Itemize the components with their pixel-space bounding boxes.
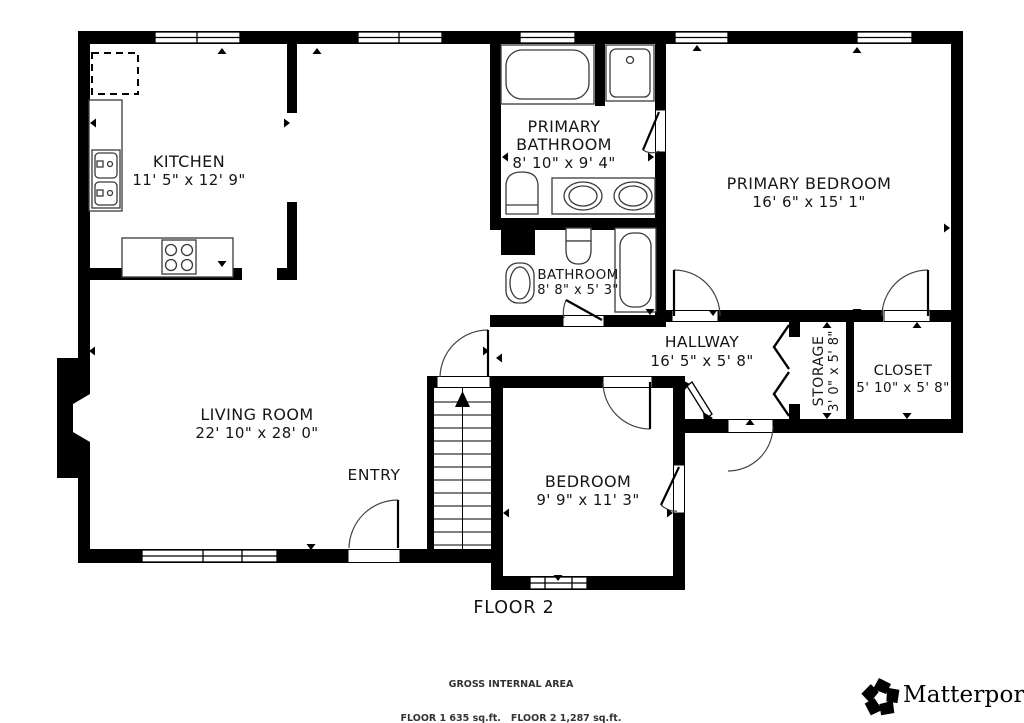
- toilet-icon: [566, 228, 591, 264]
- floor-areas: FLOOR 1 635 sq.ft. FLOOR 2 1,287 sq.ft.: [341, 713, 682, 723]
- window: [520, 32, 575, 43]
- room-name: PRIMARY BEDROOM: [727, 174, 892, 193]
- brand-wordmark: Matterport: [903, 682, 1024, 708]
- room-dims: 8' 8" x 5' 3": [537, 283, 619, 299]
- kitchen-sink-icon: [92, 150, 120, 208]
- room-label-storage: STORAGE 3' 0" x 5' 8": [811, 330, 843, 412]
- window: [675, 32, 728, 43]
- stove-icon: [162, 240, 196, 274]
- bathtub-icon: [615, 228, 656, 312]
- room-dims: 8' 10" x 9' 4": [512, 154, 615, 172]
- room-name: BATHROOM: [537, 267, 619, 283]
- sink-icon: [506, 263, 534, 303]
- room-label-kitchen: KITCHEN 11' 5" x 12' 9": [132, 152, 245, 190]
- pantry-dashed-icon: [92, 53, 138, 94]
- gross-area-title: GROSS INTERNAL AREA: [341, 679, 682, 690]
- room-name: LIVING ROOM: [195, 405, 318, 424]
- room-label-bathroom: BATHROOM 8' 8" x 5' 3": [537, 267, 619, 299]
- room-name: HALLWAY: [650, 333, 753, 352]
- room-name: KITCHEN: [132, 152, 245, 171]
- bathtub-icon: [501, 45, 594, 104]
- window: [358, 32, 442, 43]
- room-label-entry: ENTRY: [347, 466, 400, 484]
- room-dims: 9' 9" x 11' 3": [536, 491, 639, 510]
- window: [857, 32, 912, 43]
- room-dims: 16' 6" x 15' 1": [727, 193, 892, 212]
- room-dims: 3' 0" x 5' 8": [827, 330, 843, 412]
- room-name: STORAGE: [811, 330, 827, 412]
- stairs-up-arrow-icon: [455, 391, 470, 407]
- room-label-bedroom: BEDROOM 9' 9" x 11' 3": [536, 472, 639, 510]
- shower-icon: [606, 45, 654, 101]
- room-name: CLOSET: [856, 363, 950, 380]
- floorplan-page: KITCHEN 11' 5" x 12' 9" PRIMARY BATHROOM…: [0, 0, 1024, 723]
- toilet-icon: [506, 172, 538, 214]
- window: [155, 32, 240, 43]
- stairs: [434, 388, 491, 549]
- area-summary: GROSS INTERNAL AREA FLOOR 1 635 sq.ft. F…: [341, 656, 682, 723]
- matterport-logo: Matterport®: [862, 676, 1022, 720]
- room-dims: 22' 10" x 28' 0": [195, 424, 318, 443]
- walls: [57, 31, 963, 590]
- room-dims: 16' 5" x 5' 8": [650, 352, 753, 371]
- room-name: BEDROOM: [536, 472, 639, 491]
- double-vanity-icon: [552, 178, 655, 214]
- room-label-closet: CLOSET 5' 10" x 5' 8": [856, 363, 950, 397]
- floor-title: FLOOR 2: [473, 598, 554, 618]
- room-dims: 5' 10" x 5' 8": [856, 380, 950, 397]
- room-name: PRIMARY: [512, 118, 615, 136]
- room-label-hallway: HALLWAY 16' 5" x 5' 8": [650, 333, 753, 371]
- room-label-primary-bathroom: PRIMARY BATHROOM 8' 10" x 9' 4": [512, 118, 615, 172]
- room-name: BATHROOM: [512, 136, 615, 154]
- window: [142, 550, 277, 562]
- room-label-primary-bedroom: PRIMARY BEDROOM 16' 6" x 15' 1": [727, 174, 892, 212]
- room-dims: 11' 5" x 12' 9": [132, 171, 245, 190]
- room-label-living-room: LIVING ROOM 22' 10" x 28' 0": [195, 405, 318, 443]
